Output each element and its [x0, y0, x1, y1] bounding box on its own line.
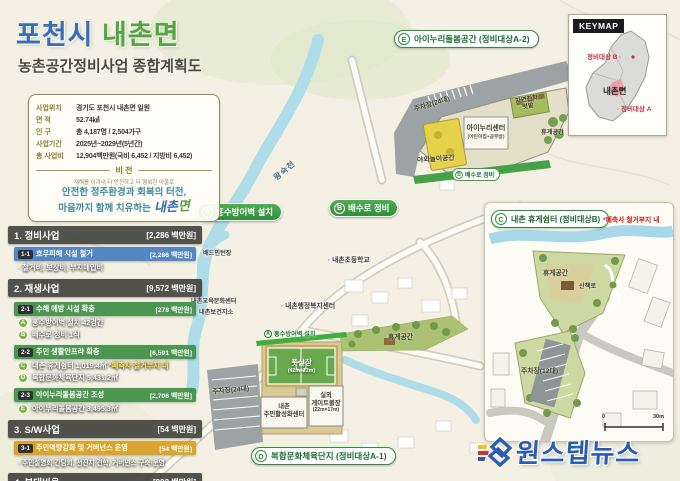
section-3-header: 3. S/W사업 [54 백만원] [8, 420, 202, 438]
c-trail-label: 산책로 [579, 281, 596, 290]
logo-part1: 내촌 [153, 199, 178, 215]
section-4-title: 4. 부대비용 [14, 475, 60, 481]
section-2-header: 2. 재생사업 [9,572 백만원] [8, 279, 202, 297]
info-row: 사업기간2025년~2029년(5년간) [36, 139, 212, 149]
drainage-pill-label: 배수로 정비 [348, 202, 389, 214]
watermark-text: 원스텝뉴스 [515, 433, 642, 470]
d-futsal-dim: (42m×22m) [268, 368, 335, 374]
item-1-1-amount: [2,286 백만원] [150, 249, 192, 259]
vision-slogan-small: 재해를 이겨내 더 안전하고 더 행복한 마을로 [36, 178, 212, 186]
section-1-header: 1. 정비사업 [2,286 백만원] [8, 226, 202, 244]
info-value: 52.74㎢ [76, 115, 99, 125]
item-3-1-amount: [54 백만원] [159, 443, 192, 453]
item-2-2-amount: [6,591 백만원] [150, 347, 192, 357]
vision-line2-wrap: 마음까지 함께 치유하는내촌면 [36, 199, 212, 216]
circle-b-icon: B [334, 203, 345, 214]
d-gate-line2: 게이트볼장 [309, 400, 343, 408]
onestep-news-icon [478, 436, 512, 468]
inset-d-title-pill: D 복합문화체육단지 (정비대상A-1) [251, 447, 396, 465]
d-flood-text: 홍수방어벽 설치 [274, 329, 316, 338]
item-2-2-label: 주민 생활인프라 확충 [36, 347, 100, 357]
d-center-line1: 내촌 [261, 403, 307, 411]
item-2-3-amount: [2,706 백만원] [150, 390, 192, 400]
sub-item-c: C 내촌 휴게쉼터 1,019.4㎡ *폐축사 철거부지 내 [18, 361, 202, 371]
sub-item-a-text: 홍수방어벽 설치 42경간 [32, 318, 104, 328]
item-2-2-badge: 2-2 [18, 348, 33, 357]
school-label: · 내촌초등학교 [328, 254, 370, 264]
d-futsal-label: 풋살장 (42m×22m) [268, 357, 335, 374]
vision-title: 비 전 [116, 165, 133, 176]
c-scale-label: 30m [653, 414, 664, 420]
e-center-sub: (어린이집+공부방) [463, 133, 509, 140]
c-scale-zero: 0 [602, 414, 605, 420]
flood-wall-pill-label: 홍수방어벽 설치 [216, 206, 273, 218]
circle-e-icon: E [398, 33, 410, 45]
sub-item-c-note: *폐축사 철거부지 내 [109, 361, 169, 370]
keymap-title: KEYMAP [573, 19, 624, 33]
d-circle-a-icon: A [264, 330, 272, 338]
title-city: 포천시 [16, 20, 94, 50]
keymap-panel: KEYMAP 정비대상 B · 내촌면 · 정비대상 A [568, 14, 667, 136]
keymap-area-label: 내촌면 [603, 85, 626, 97]
inset-c-map [485, 203, 673, 441]
vision-line2: 마음까지 함께 치유하는 [58, 203, 151, 214]
inset-c-title-pill: C 내촌 휴게쉼터 (정비대상B) [491, 210, 609, 228]
item-2-3: 2-3 아이누리돌봄공간 조성 [2,706 백만원] [14, 388, 196, 402]
d-gateball-label: 실외 게이트볼장 (22m×17m) [309, 392, 343, 413]
badminton-label: 배드민턴장 [203, 248, 231, 257]
d-rest-label: 휴게공간 [388, 331, 413, 341]
info-value: 총 4,187명 / 2,504가구 [76, 127, 141, 137]
inset-e-title: 아이누리돌봄공간 (정비대상A-2) [414, 33, 530, 45]
section-3-amount: [54 백만원] [157, 424, 196, 435]
info-value: 12,904백만원(국비 6,452 / 지방비 6,452) [76, 151, 192, 161]
sub-item-d: D 복합문화체육단지 5,431.2㎡ [18, 373, 202, 383]
inset-c-panel: C 내촌 휴게쉼터 (정비대상B) *폐축사 철거부지 내 휴게공간 산책로 주… [484, 202, 674, 442]
vision-slogan: 안전한 정주환경과 회복의 터전, 마음까지 함께 치유하는내촌면 [36, 187, 212, 216]
page-title: 포천시 내촌면 [16, 13, 180, 52]
info-label: 인 구 [36, 127, 72, 137]
c-parking-label: 주차장(12대) [521, 365, 558, 375]
circle-c-badge: C [18, 361, 28, 371]
section-3-title: 3. S/W사업 [14, 422, 60, 436]
e-drain-pill: B 배수로 정비 [452, 168, 500, 181]
info-row: 면 적52.74㎢ [36, 115, 212, 125]
item-3-1-label: 주민역량강화 및 거버넌스 운영 [36, 443, 128, 453]
sub-item-a: A 홍수방어벽 설치 42경간 [18, 318, 202, 328]
plan-map-canvas: 왕숙천 배드민턴장 · 내촌초등학교 · 내촌행정복지센터 내촌교육문화센터 내… [0, 0, 680, 481]
item-1-1: 1-1 호우피해 시설 철거 [2,286 백만원] [14, 247, 196, 261]
info-label: 면 적 [36, 115, 72, 125]
sub-item-e: E 아이누리돌봄공간 3,495.3㎡ [18, 404, 202, 414]
item-2-1-label: 수해 예방 시설 확충 [36, 304, 95, 314]
item-2-2: 2-2 주민 생활인프라 확충 [6,591 백만원] [14, 345, 196, 359]
section-2-title: 2. 재생사업 [14, 281, 60, 295]
section-1-title: 1. 정비사업 [14, 228, 60, 242]
health-center-label: 내촌보건지소 [199, 307, 233, 316]
e-center-name: 아이누리센터 [463, 123, 509, 133]
circle-c-icon: C [495, 213, 507, 225]
e-drain-label: 배수로 정비 [465, 170, 494, 179]
circle-e-badge: E [18, 404, 28, 414]
drainage-pill: B 배수로 정비 [329, 199, 398, 217]
section-4-amount: [992 백만원] [153, 477, 196, 481]
section-2-amount: [9,572 백만원] [146, 283, 196, 294]
sub-item-d-text: 복합문화체육단지 5,431.2㎡ [32, 373, 118, 383]
inset-d-title: 복합문화체육단지 (정비대상A-1) [271, 450, 387, 462]
item-3-1-note: · 주민설명회·간담회, 선진지 견학, 거버넌스 구축·운영 [18, 457, 202, 467]
info-label: 사업기간 [36, 139, 72, 149]
item-1-1-badge: 1-1 [18, 250, 33, 259]
item-1-1-label: 호우피해 시설 철거 [36, 249, 93, 259]
admin-center-label: · 내촌행정복지센터 [281, 300, 335, 310]
circle-d-icon: D [255, 450, 267, 462]
item-1-1-note: · 철거비, 보상비, 부지매입비 [18, 263, 202, 273]
project-info-box: 사업위치경기도 포천시 내촌면 일원 면 적52.74㎢ 인 구총 4,187명… [28, 94, 220, 222]
page-subtitle: 농촌공간정비사업 종합계획도 [18, 55, 202, 76]
title-town: 내촌면 [102, 20, 180, 50]
sub-item-c-text: 내촌 휴게쉼터 1,019.4㎡ *폐축사 철거부지 내 [32, 361, 169, 371]
item-3-1: 3-1 주민역량강화 및 거버넌스 운영 [54 백만원] [14, 441, 196, 455]
item-2-3-label: 아이누리돌봄공간 조성 [36, 390, 104, 400]
inset-c-title: 내촌 휴게쉼터 (정비대상B) [511, 214, 600, 225]
item-2-1-amount: [278 백만원] [155, 304, 192, 314]
section-4-header: 4. 부대비용 [992 백만원] [8, 473, 202, 481]
circle-b-badge: B [18, 330, 28, 340]
e-rest-label: 휴게공간 [541, 127, 564, 136]
sub-item-e-text: 아이누리돌봄공간 3,495.3㎡ [32, 404, 118, 414]
info-label: 사업위치 [36, 103, 72, 113]
d-gate-dim: (22m×17m) [309, 407, 343, 413]
info-value: 경기도 포천시 내촌면 일원 [76, 103, 150, 113]
circle-a-badge: A [18, 318, 28, 328]
logo-part2: 면 [177, 198, 190, 214]
news-watermark: 원스텝뉴스 [478, 433, 641, 470]
d-flood-label: A 홍수방어벽 설치 [264, 329, 316, 338]
info-row: 사업위치경기도 포천시 내촌면 일원 [36, 103, 212, 113]
budget-sidebar: 1. 정비사업 [2,286 백만원] 1-1 호우피해 시설 철거 [2,28… [8, 222, 202, 481]
e-circle-b-icon: B [455, 171, 463, 179]
info-row: 인 구총 4,187명 / 2,504가구 [36, 127, 212, 137]
vision-divider: 비 전 [36, 165, 212, 176]
circle-d-badge: D [18, 373, 28, 383]
item-2-1: 2-1 수해 예방 시설 확충 [278 백만원] [14, 302, 196, 316]
d-center-label: 내촌 주민활성화센터 [261, 403, 307, 419]
e-center-label: 아이누리센터 (어린이집+공부방) [463, 123, 509, 140]
inset-e-title-pill: E 아이누리돌봄공간 (정비대상A-2) [394, 30, 539, 48]
keymap-target-a: · 정비대상 A [617, 103, 651, 113]
keymap-target-b: 정비대상 B · [587, 51, 621, 61]
c-rest-label: 휴게공간 [543, 267, 568, 277]
item-3-1-badge: 3-1 [18, 444, 33, 453]
item-2-3-badge: 2-3 [18, 391, 33, 400]
d-center-line2: 주민활성화센터 [261, 411, 307, 419]
c-demolition-note: *폐축사 철거부지 내 [603, 214, 659, 224]
info-value: 2025년~2029년(5년간) [76, 139, 142, 149]
sub-item-b: B 배수로 정비 1식 [18, 330, 202, 340]
d-gate-line1: 실외 [309, 392, 343, 400]
item-2-1-badge: 2-1 [18, 305, 33, 314]
info-row: 총 사업비12,904백만원(국비 6,452 / 지방비 6,452) [36, 151, 212, 161]
section-1-amount: [2,286 백만원] [146, 230, 196, 241]
keymap-shape [569, 29, 666, 133]
sub-item-b-text: 배수로 정비 1식 [32, 330, 80, 340]
sub-item-c-main: 내촌 휴게쉼터 1,019.4㎡ [32, 361, 109, 370]
naechon-logo: 내촌면 [153, 198, 190, 217]
d-futsal-name: 풋살장 [268, 357, 335, 368]
info-label: 총 사업비 [36, 151, 72, 161]
